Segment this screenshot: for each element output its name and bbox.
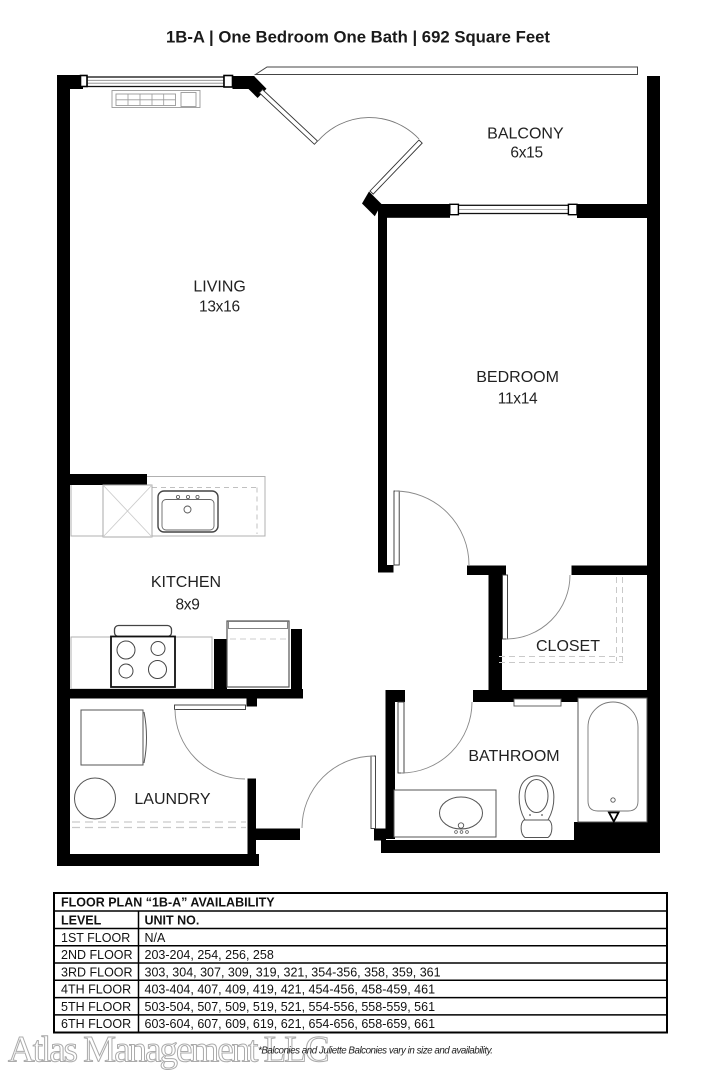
svg-text:CLOSET: CLOSET [536,638,600,655]
svg-text:503-504, 507, 509, 519, 521, 5: 503-504, 507, 509, 519, 521, 554-556, 55… [145,1000,436,1014]
svg-text:FLOOR PLAN “1B-A” AVAILABILITY: FLOOR PLAN “1B-A” AVAILABILITY [61,896,275,910]
svg-text:3RD FLOOR: 3RD FLOOR [61,965,133,979]
svg-text:LAUNDRY: LAUNDRY [134,791,211,808]
svg-text:6x15: 6x15 [510,145,542,162]
svg-text:UNIT NO.: UNIT NO. [145,914,200,928]
svg-text:11x14: 11x14 [498,390,538,407]
svg-text:BALCONY: BALCONY [487,125,564,142]
svg-text:4TH FLOOR: 4TH FLOOR [61,983,131,997]
svg-text:5TH FLOOR: 5TH FLOOR [61,1000,131,1014]
svg-text:BATHROOM: BATHROOM [468,748,559,765]
svg-text:LEVEL: LEVEL [61,914,102,928]
svg-text:1B-A | One Bedroom One Bath |: 1B-A | One Bedroom One Bath | 692 Square… [166,28,550,47]
svg-text:N/A: N/A [145,931,167,945]
svg-text:KITCHEN: KITCHEN [151,574,221,591]
svg-text:1ST FLOOR: 1ST FLOOR [61,931,130,945]
svg-text:LIVING: LIVING [193,279,245,296]
svg-text:*Balconies and Juliette Balcon: *Balconies and Juliette Balconies vary i… [258,1046,493,1057]
svg-text:2ND FLOOR: 2ND FLOOR [61,948,133,962]
svg-text:403-404, 407, 409, 419, 421, 4: 403-404, 407, 409, 419, 421, 454-456, 45… [145,983,436,997]
svg-text:203-204, 254, 256, 258: 203-204, 254, 256, 258 [145,948,274,962]
svg-text:13x16: 13x16 [199,299,240,316]
svg-text:8x9: 8x9 [175,597,199,614]
svg-text:303, 304, 307, 309, 319, 321,: 303, 304, 307, 309, 319, 321, 354-356, 3… [145,965,441,979]
svg-text:BEDROOM: BEDROOM [476,369,559,386]
